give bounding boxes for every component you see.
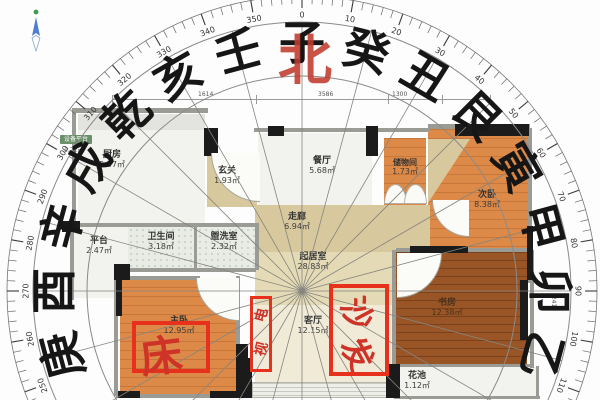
sofa-annotation-box: 沙 发 [329, 284, 389, 376]
tv-annotation-box: 电 视 [250, 296, 272, 372]
fengshui-floorplan-view: 1614 3586 1300 2418 厨房5.37㎡ 玄关1.93㎡ 餐厅5.… [0, 0, 600, 400]
sofa-annotation-label: 沙 [331, 288, 387, 338]
tv-annotation-label: 电 [250, 306, 273, 325]
tv-annotation-label: 视 [250, 340, 273, 359]
compass-needle-icon[interactable] [26, 8, 46, 52]
bed-annotation-label: 床 [136, 321, 185, 387]
bed-annotation-box: 床 [132, 321, 210, 373]
sofa-annotation-label: 发 [331, 328, 387, 378]
annotations-layer: 床 电 视 沙 发 [0, 0, 600, 400]
